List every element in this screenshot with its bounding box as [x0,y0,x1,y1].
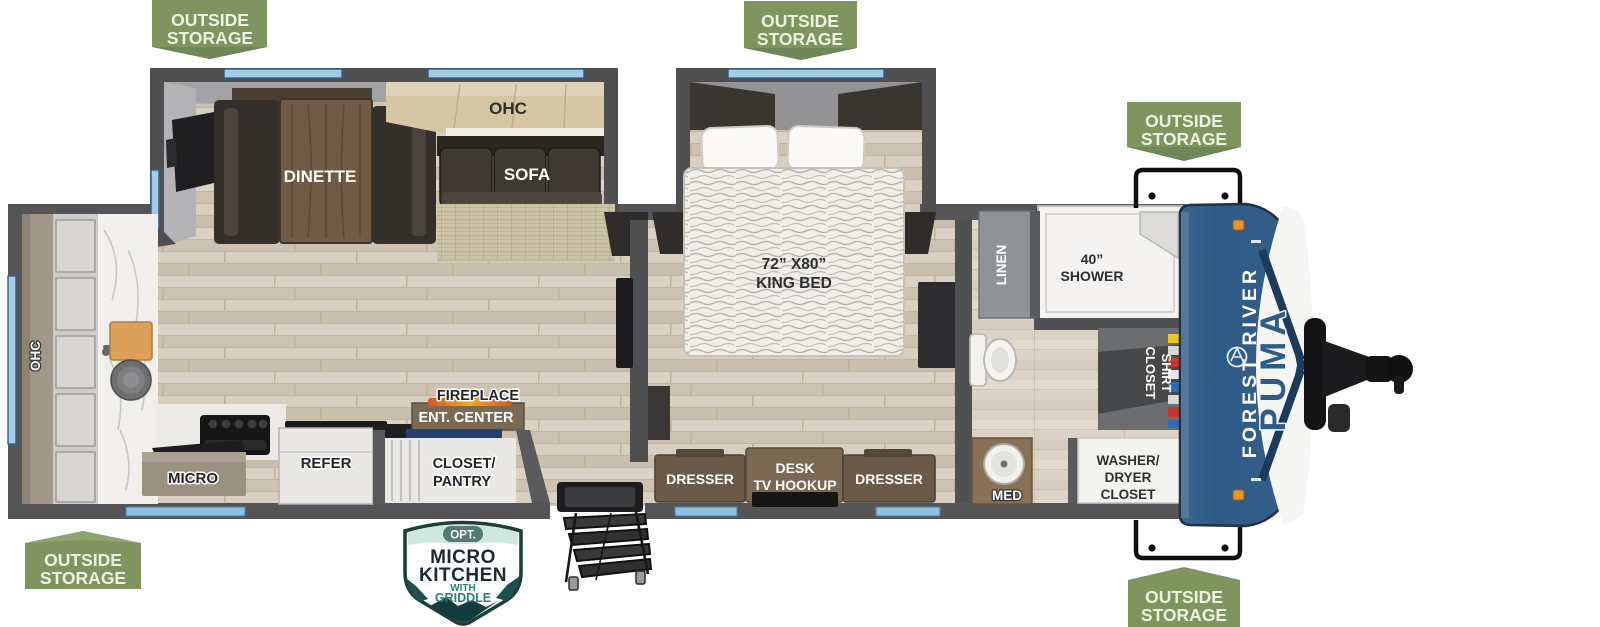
svg-text:DINETTE: DINETTE [284,167,357,186]
svg-text:CLOSET: CLOSET [1143,347,1158,400]
svg-text:PUMA: PUMA [1254,304,1293,431]
svg-text:STORAGE: STORAGE [1141,129,1227,149]
svg-text:72” X80”: 72” X80” [762,256,827,273]
svg-text:GRIDDLE: GRIDDLE [435,591,491,605]
svg-text:REFER: REFER [301,455,352,472]
svg-text:LINEN: LINEN [994,245,1009,286]
svg-text:DRYER: DRYER [1105,470,1152,485]
svg-text:CLOSET: CLOSET [1101,487,1157,502]
svg-text:OUTSIDE: OUTSIDE [1145,111,1223,131]
svg-text:STORAGE: STORAGE [167,28,253,48]
svg-text:SHIRT: SHIRT [1159,354,1174,393]
svg-text:OHC: OHC [28,341,43,371]
svg-text:KING BED: KING BED [756,275,832,292]
svg-text:OUTSIDE: OUTSIDE [171,10,249,30]
svg-text:STORAGE: STORAGE [757,29,843,49]
svg-text:DESK: DESK [776,460,815,476]
svg-text:TV HOOKUP: TV HOOKUP [753,477,836,493]
svg-text:OHC: OHC [489,99,527,118]
svg-text:ENT. CENTER: ENT. CENTER [418,410,514,426]
svg-text:WASHER/: WASHER/ [1096,453,1159,468]
svg-text:CLOSET/: CLOSET/ [433,456,496,472]
svg-text:MICRO: MICRO [168,470,218,487]
svg-text:SOFA: SOFA [504,165,550,184]
svg-text:DRESSER: DRESSER [855,471,923,487]
svg-text:MED: MED [992,488,1022,503]
svg-text:OUTSIDE: OUTSIDE [44,550,122,570]
svg-text:OPT.: OPT. [450,530,476,542]
svg-text:SHOWER: SHOWER [1061,268,1124,284]
svg-text:STORAGE: STORAGE [40,568,126,588]
svg-text:STORAGE: STORAGE [1141,605,1227,625]
svg-text:OUTSIDE: OUTSIDE [761,11,839,31]
svg-text:DRESSER: DRESSER [666,471,734,487]
svg-text:OUTSIDE: OUTSIDE [1145,587,1223,607]
svg-text:PANTRY: PANTRY [433,474,491,490]
svg-text:FIREPLACE: FIREPLACE [437,388,520,404]
svg-text:40”: 40” [1081,251,1104,267]
